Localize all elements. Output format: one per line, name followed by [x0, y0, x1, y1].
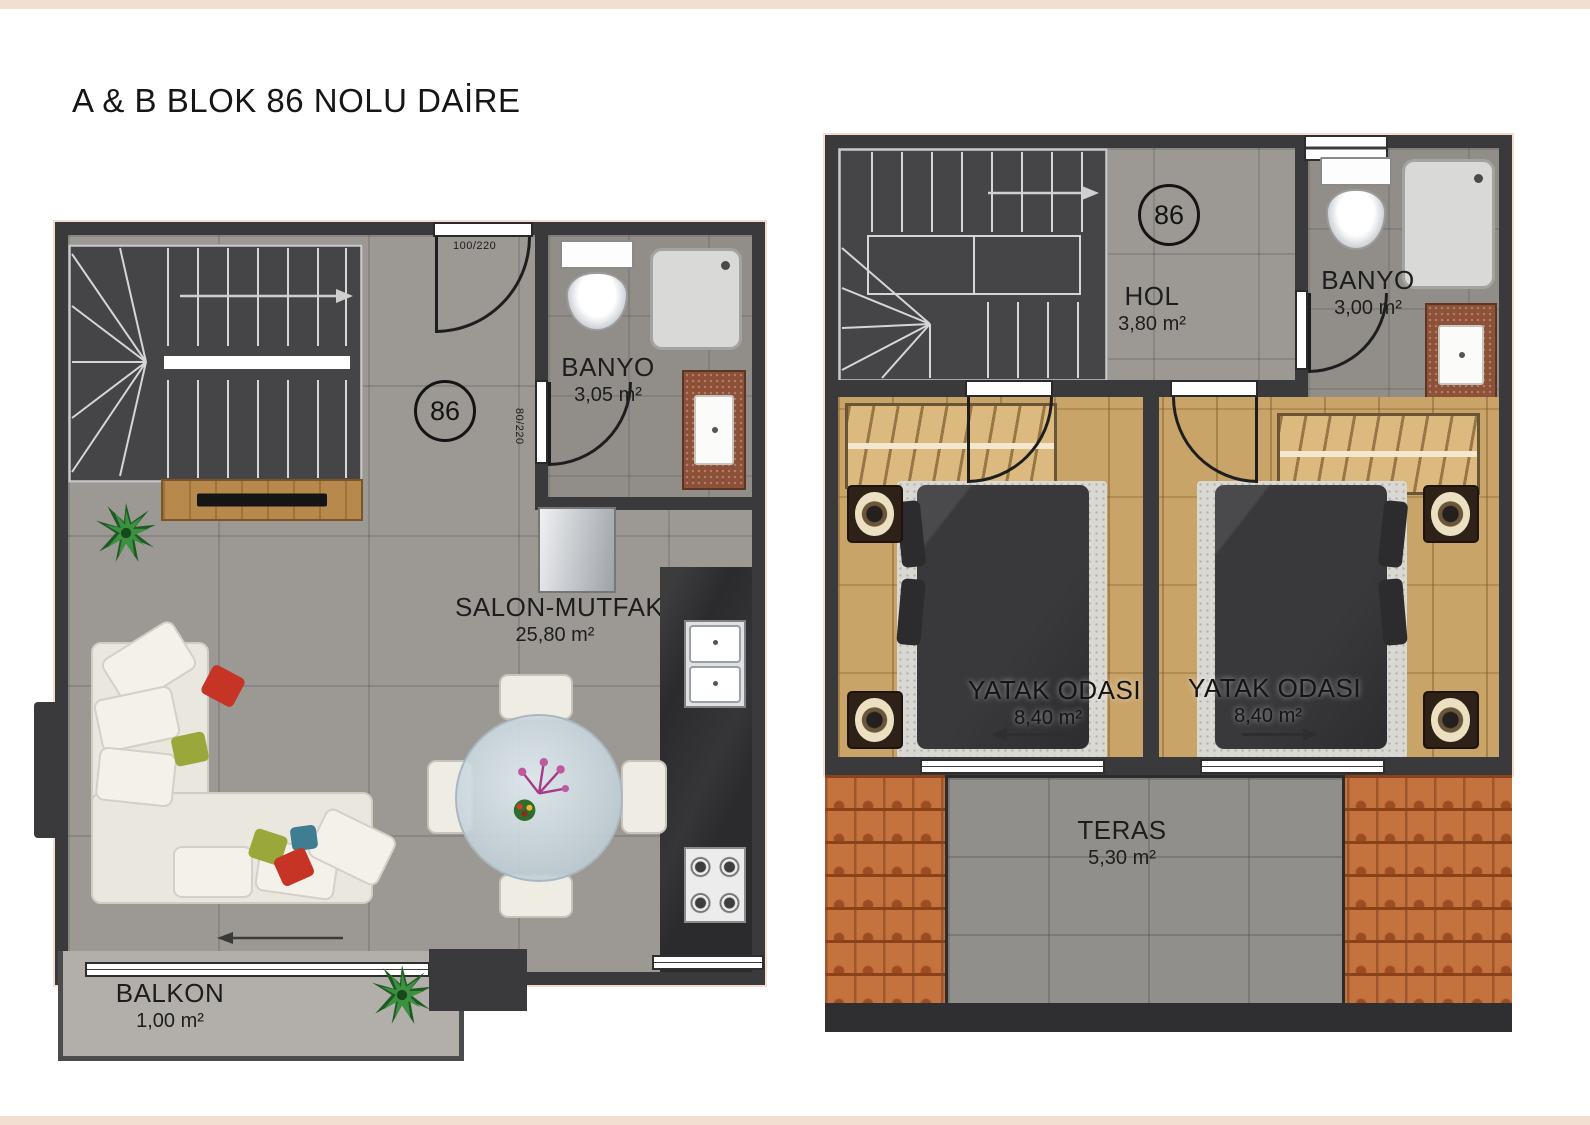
bedroom1-slide-arrow-icon: [990, 727, 1070, 742]
tv-icon: [197, 494, 327, 507]
speaker-icon: [847, 691, 903, 749]
balcony-end-wall: [429, 949, 527, 1011]
room-name: SALON-MUTFAK: [455, 592, 655, 623]
floor1-plan: BANYO 3,05 m² 80/220 86 100/220 SALON-MU…: [55, 222, 765, 1063]
bottom-border-band: [0, 1116, 1590, 1125]
room-label-salon: SALON-MUTFAK 25,80 m²: [455, 592, 655, 647]
room-label-teras: TERAS 5,30 m²: [1042, 815, 1202, 870]
toilet-icon: [560, 240, 634, 336]
room-name: BANYO: [1303, 265, 1433, 296]
balcony-slide-arrow-icon: [215, 930, 345, 946]
floor1-staircase: [68, 244, 363, 483]
kitchen-sink-icon: [684, 620, 746, 708]
banyo-door-opening: [535, 380, 548, 464]
top-border-band: [0, 0, 1590, 9]
room-name: BALKON: [90, 978, 250, 1009]
bedroom1-door-opening: [965, 380, 1053, 397]
sofa-pillow-teal: [289, 824, 318, 851]
room-name: YATAK ODASI: [968, 675, 1128, 706]
bathroom-sink-icon: [682, 370, 746, 490]
plant-icon: [371, 964, 433, 1026]
room-label-yatak2: YATAK ODASI 8,40 m²: [1188, 673, 1348, 728]
terrace-floor: [945, 775, 1345, 1007]
wall-column: [34, 702, 68, 838]
bedrooms-divider-wall: [1143, 397, 1159, 762]
entry-door-size-label: 100/220: [453, 240, 496, 252]
plant-icon: [95, 502, 157, 564]
shower-tray-icon: [650, 248, 742, 350]
room-name: HOL: [1072, 281, 1232, 312]
bedroom2-terrace-door: [1200, 759, 1385, 774]
banyo2-door-opening: [1295, 290, 1308, 370]
room-name: BANYO: [528, 352, 688, 383]
banyo-door-size-label: 80/220: [513, 408, 525, 445]
dining-chair: [621, 760, 667, 834]
floor2-staircase: [838, 148, 1108, 382]
room-area: 1,00 m²: [90, 1009, 250, 1033]
speaker-icon: [1423, 485, 1479, 543]
room-name: TERAS: [1042, 815, 1202, 846]
floor2-plan: BANYO 3,00 m² 86 HOL 3,80 m² YATAK ODASI…: [825, 135, 1512, 1032]
toilet-icon: [1320, 157, 1392, 255]
sofa-cushion: [173, 846, 253, 898]
tv-unit: [161, 479, 363, 521]
room-name: YATAK ODASI: [1188, 673, 1348, 704]
unit-number-badge-floor2: 86: [1138, 184, 1200, 246]
fridge-icon: [538, 507, 616, 593]
speaker-icon: [847, 485, 903, 543]
room-area: 8,40 m²: [1188, 704, 1348, 728]
bedroom2-slide-arrow-icon: [1240, 727, 1320, 742]
entry-door-opening: [433, 222, 533, 237]
bottom-window: [652, 955, 764, 970]
room-label-hol: HOL 3,80 m²: [1072, 281, 1232, 336]
dining-table: [455, 714, 623, 882]
bedroom2-door-opening: [1170, 380, 1258, 397]
table-flowers-icon: [503, 752, 575, 830]
sofa-cushion: [94, 746, 177, 808]
unit-number-badge-floor1: 86: [414, 380, 476, 442]
bathroom-sink-icon: [1425, 303, 1497, 407]
room-area: 5,30 m²: [1042, 846, 1202, 870]
bedroom1-terrace-door: [920, 759, 1105, 774]
room-area: 3,80 m²: [1072, 312, 1232, 336]
speaker-icon: [1423, 691, 1479, 749]
stove-icon: [684, 847, 746, 923]
page-title: A & B BLOK 86 NOLU DAİRE: [72, 82, 521, 120]
room-label-yatak1: YATAK ODASI 8,40 m²: [968, 675, 1128, 730]
bottom-outer-wall: [825, 1003, 1512, 1032]
room-label-balkon: BALKON 1,00 m²: [90, 978, 250, 1033]
room-area: 25,80 m²: [455, 623, 655, 647]
